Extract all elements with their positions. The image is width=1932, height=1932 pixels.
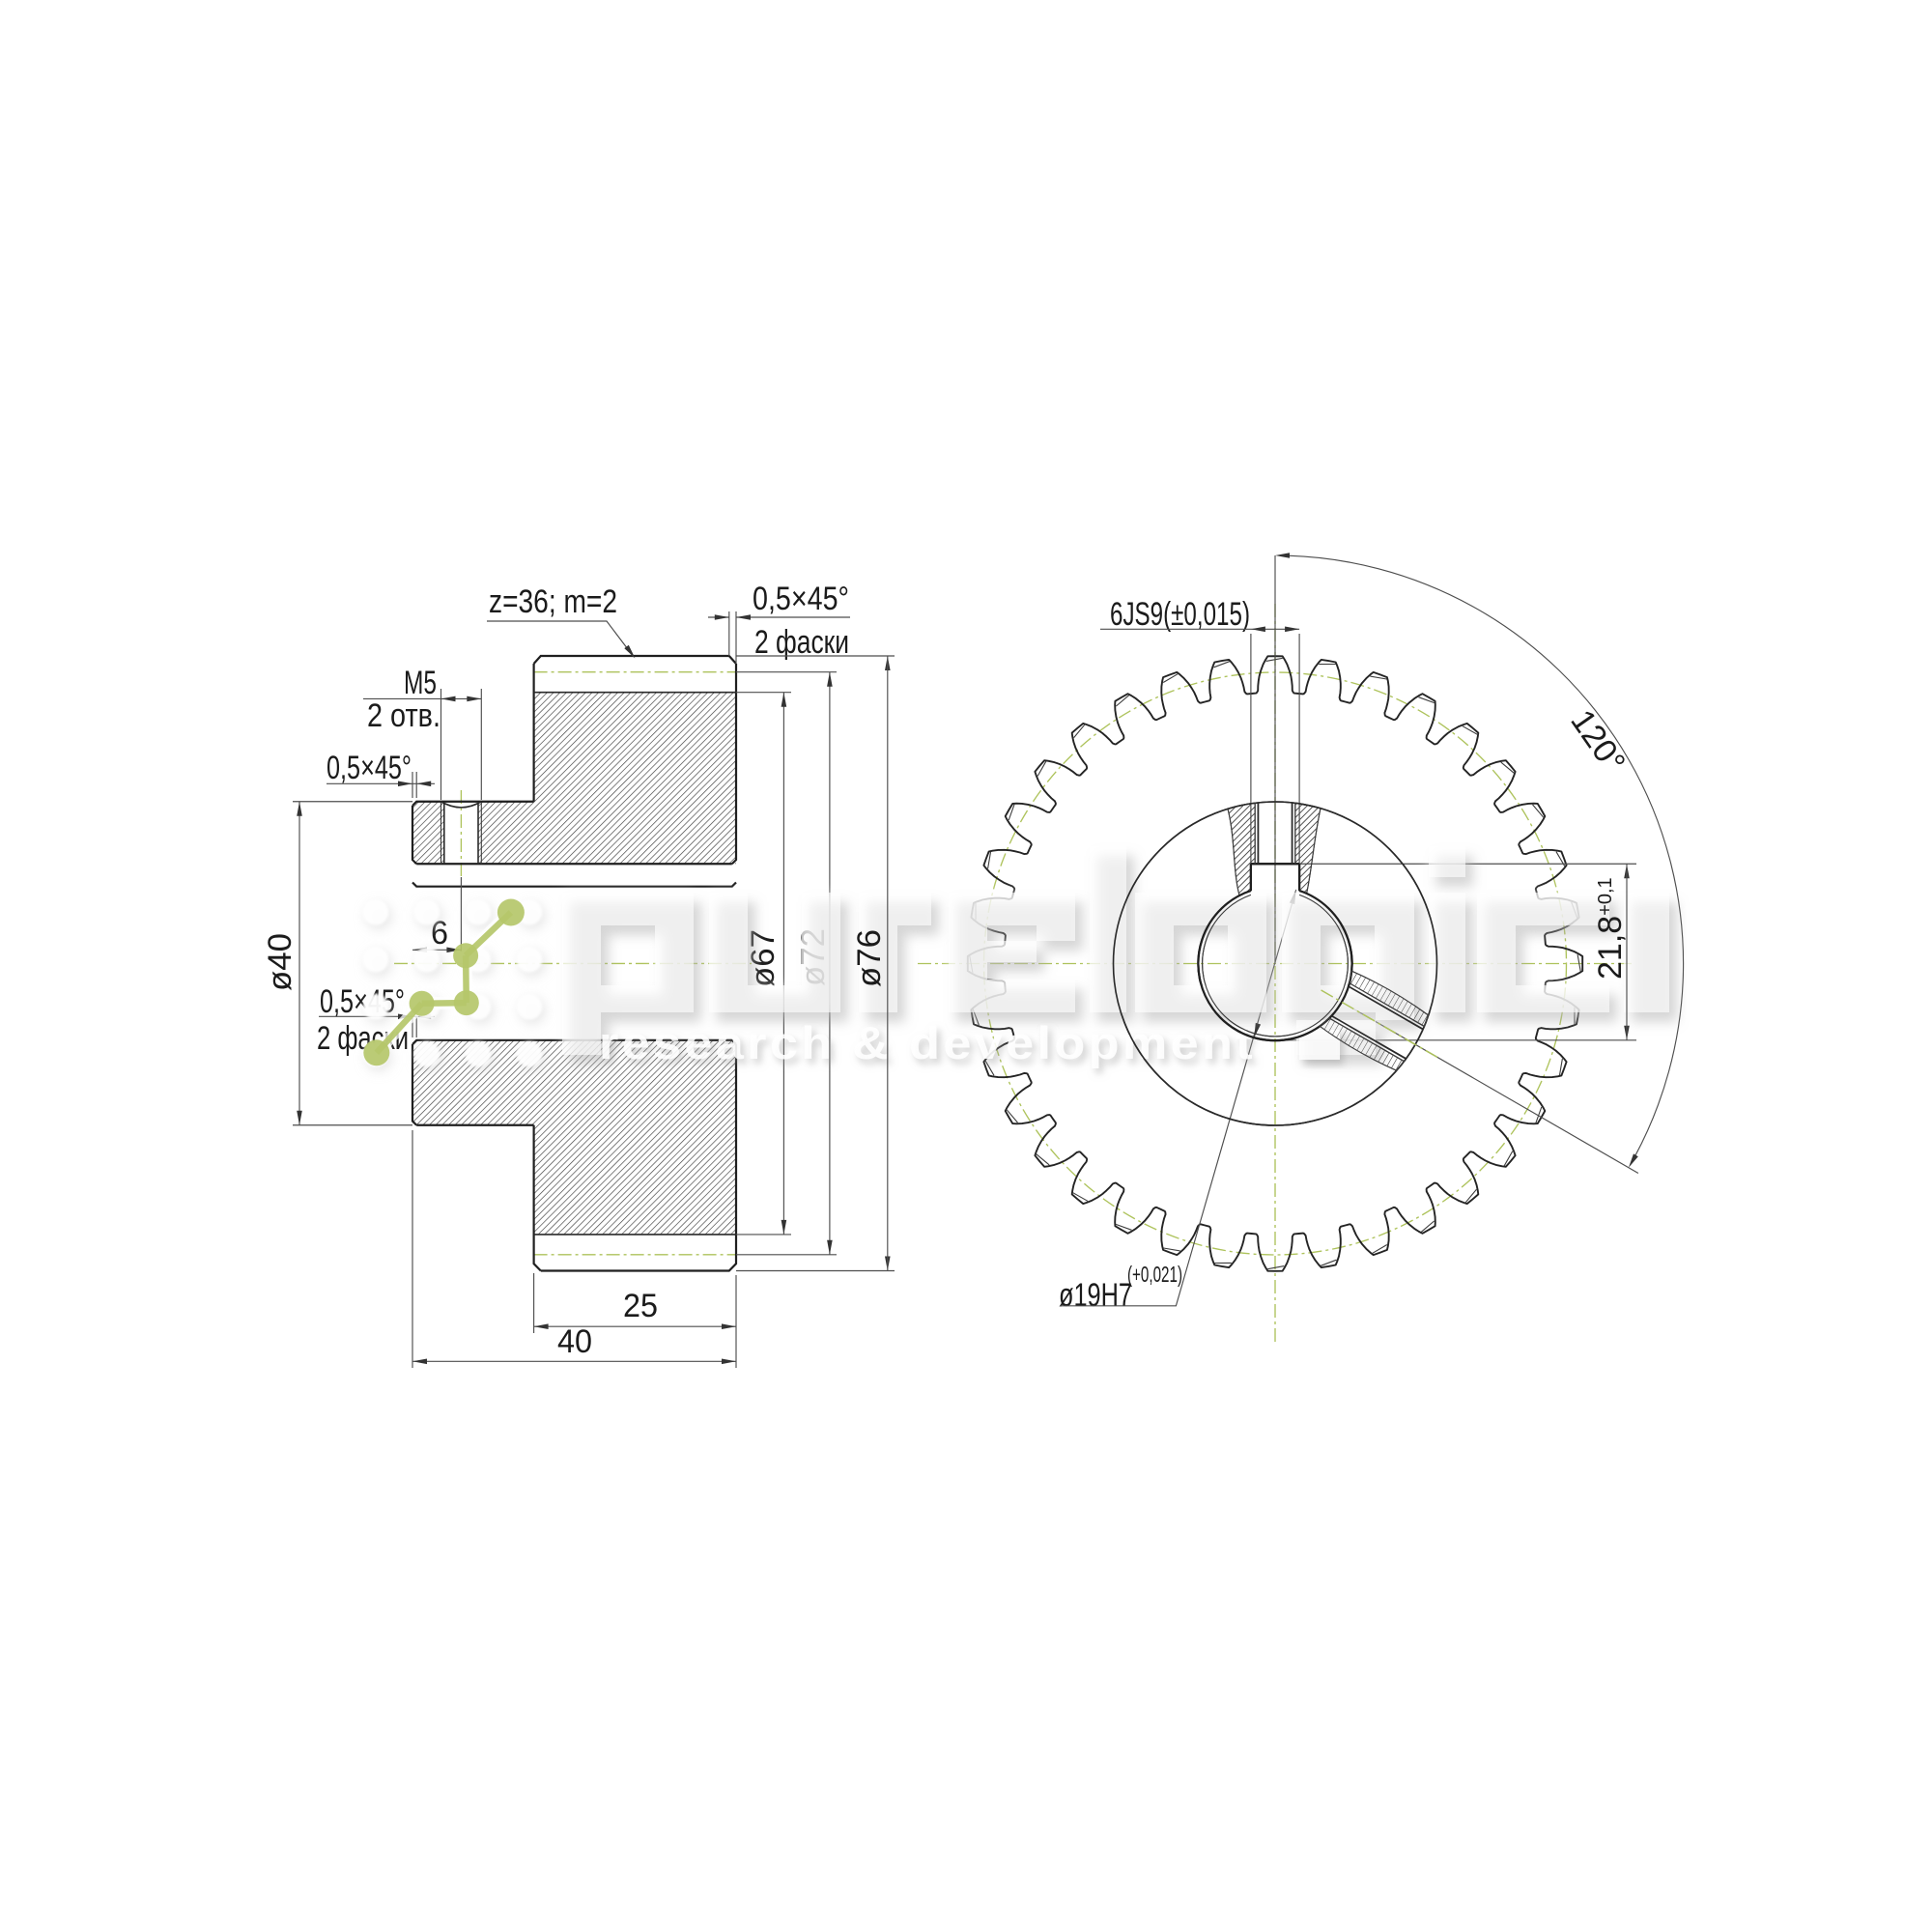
svg-text:40: 40 [557,1323,592,1360]
svg-text:z=36; m=2: z=36; m=2 [489,583,617,620]
svg-text:0,5×45°: 0,5×45° [327,750,412,786]
svg-text:25: 25 [623,1288,658,1324]
svg-text:ø19H7: ø19H7 [1059,1277,1132,1314]
svg-text:research & development: research & development [599,1017,1256,1068]
svg-text:0,5×45°: 0,5×45° [320,983,405,1020]
svg-text:2 отв.: 2 отв. [367,697,440,734]
svg-text:(+0,021): (+0,021) [1127,1262,1182,1287]
svg-text:M5: M5 [404,665,437,701]
svg-text:ø40: ø40 [262,933,298,991]
svg-text:2 фаски: 2 фаски [754,624,849,661]
svg-text:ø76: ø76 [851,929,888,987]
svg-text:6JS9(±0,015): 6JS9(±0,015) [1110,596,1250,633]
svg-text:0,5×45°: 0,5×45° [753,581,849,617]
